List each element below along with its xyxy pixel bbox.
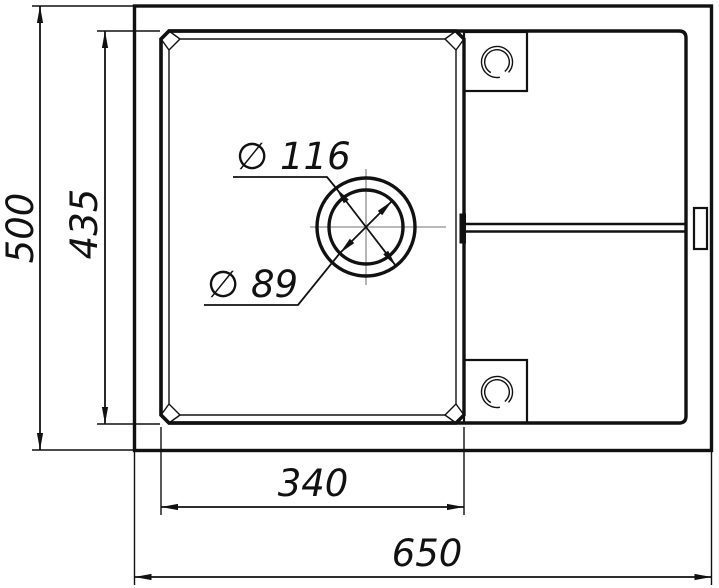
tap-knockout-top-icon	[479, 44, 515, 80]
dimensions: 500 435 340 650	[0, 6, 712, 585]
dim-overall-width-label: 650	[392, 532, 463, 575]
sink-technical-drawing: ∅ 116 ∅ 89	[0, 0, 719, 588]
drainboard	[460, 32, 708, 423]
drain-hole-diameter-label: ∅ 89	[207, 263, 298, 306]
drain-flange-leader	[233, 177, 336, 188]
dim-bowl-depth-label: 435	[63, 189, 106, 260]
drain-flange-diameter-label: ∅ 116	[236, 135, 351, 178]
drain: ∅ 116 ∅ 89	[204, 135, 446, 306]
sink-outline	[135, 6, 712, 451]
dim-bowl-width-label: 340	[278, 462, 349, 505]
dim-overall-depth-label: 500	[0, 193, 42, 264]
tap-knockout-bottom-icon	[479, 374, 515, 410]
dim-bowl-width: 340	[161, 427, 464, 515]
sink-outer-edge	[135, 6, 712, 451]
drain-groove-cap	[460, 214, 467, 244]
dim-bowl-depth: 435	[63, 31, 160, 424]
edge-clip	[694, 208, 707, 249]
tap-platform-bottom	[464, 360, 527, 423]
tap-platform-top	[464, 32, 527, 91]
drain-groove	[460, 214, 687, 244]
dim-overall-width: 650	[135, 452, 712, 585]
